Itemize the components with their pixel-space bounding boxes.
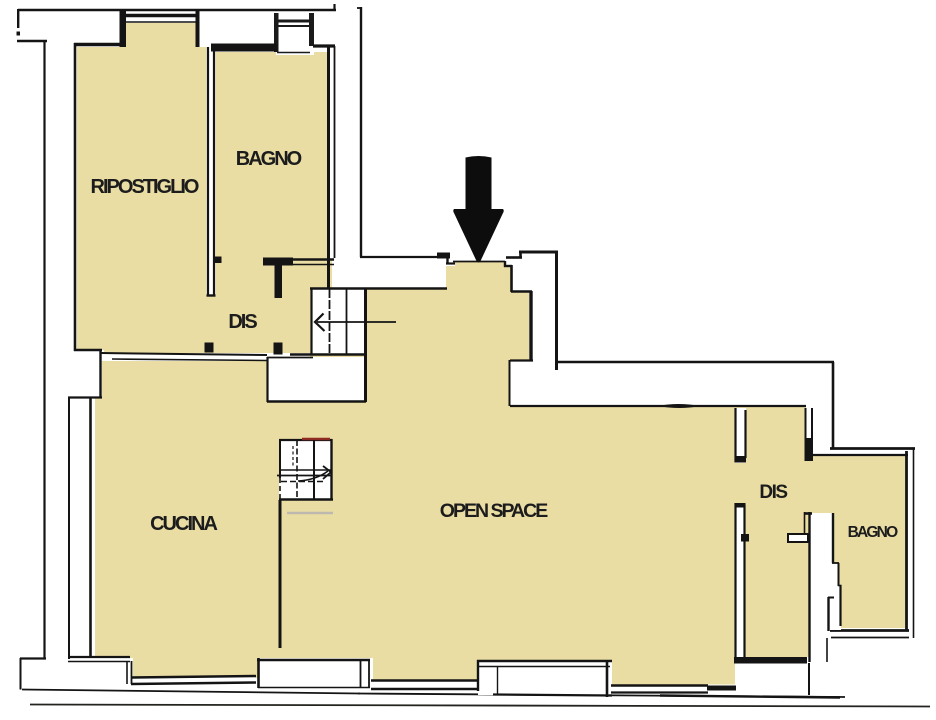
- svg-text:BAGNO: BAGNO: [236, 148, 302, 170]
- svg-text:CUCINA: CUCINA: [150, 513, 217, 535]
- svg-text:DIS: DIS: [228, 311, 257, 333]
- svg-text:DIS: DIS: [759, 482, 787, 503]
- svg-text:OPEN SPACE: OPEN SPACE: [440, 500, 548, 522]
- svg-text:BAGNO: BAGNO: [848, 524, 898, 541]
- svg-text:RIPOSTIGLIO: RIPOSTIGLIO: [91, 176, 199, 198]
